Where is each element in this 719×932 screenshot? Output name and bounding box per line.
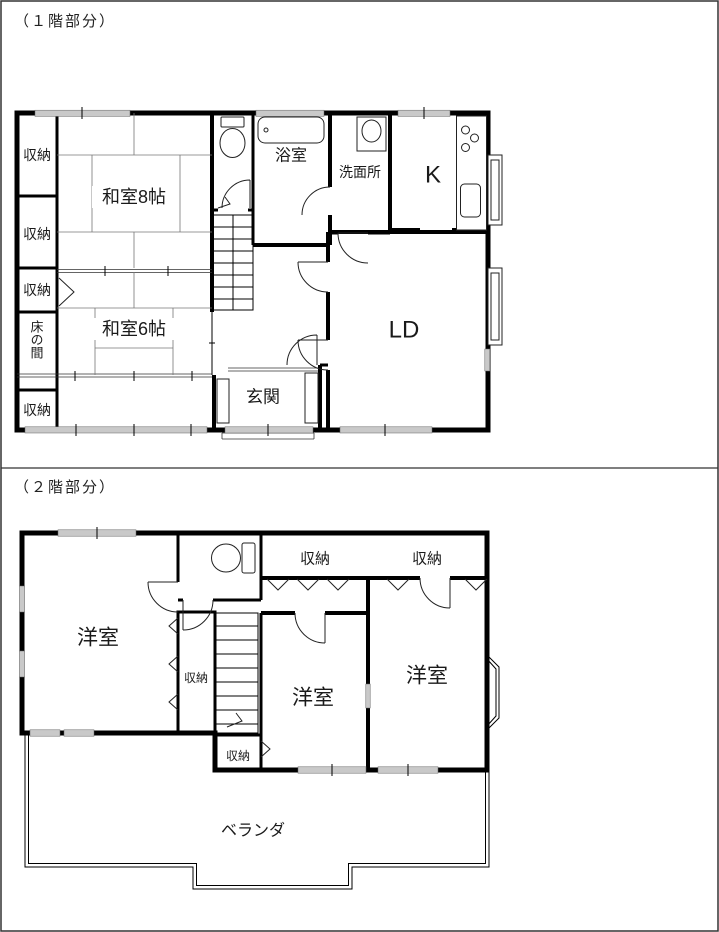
label-tokonoma: 床の間 [29, 320, 44, 360]
label-veranda: ベランダ [221, 822, 285, 840]
label-closet: 収納 [184, 671, 208, 685]
label-closet: 収納 [226, 749, 250, 763]
sink-icon [357, 117, 386, 151]
label-western-room: 洋室 [292, 687, 334, 710]
label-closet: 収納 [300, 551, 330, 568]
label-bath: 浴室 [275, 147, 307, 165]
bay-window-kitchen [488, 155, 502, 225]
label-closet: 収納 [23, 282, 51, 298]
label-western-room: 洋室 [406, 665, 448, 688]
floor2-plan: （２階部分） [14, 479, 499, 889]
label-washitsu8: 和室8帖 [102, 187, 166, 207]
bathtub-icon [258, 117, 324, 143]
toilet-icon-1f [220, 117, 245, 158]
label-washroom: 洗面所 [339, 164, 381, 180]
label-kitchen: K [425, 162, 441, 189]
floor-plan-sheet: （１階部分） [0, 0, 719, 932]
floor-plan-drawing: （１階部分） [0, 0, 719, 932]
stove-burner-icon [471, 134, 479, 142]
label-living-dining: LD [389, 317, 420, 344]
floor1-title: （１階部分） [14, 13, 116, 30]
label-closet: 収納 [23, 226, 51, 242]
label-western-room: 洋室 [77, 627, 119, 650]
kitchen-counter [457, 116, 487, 230]
bay-window-ld [488, 268, 502, 345]
label-closet: 収納 [23, 402, 51, 418]
stove-burner-icon [462, 144, 470, 152]
floor1-plan: （１階部分） [14, 13, 502, 439]
label-closet: 収納 [412, 551, 442, 568]
label-entrance: 玄関 [246, 388, 280, 407]
label-closet: 収納 [23, 147, 51, 163]
label-washitsu6: 和室6帖 [102, 319, 166, 339]
kitchen-sink-icon [461, 184, 481, 217]
floor2-title: （２階部分） [14, 479, 116, 496]
stove-burner-icon [462, 126, 470, 134]
toilet-icon-2f [212, 543, 256, 573]
